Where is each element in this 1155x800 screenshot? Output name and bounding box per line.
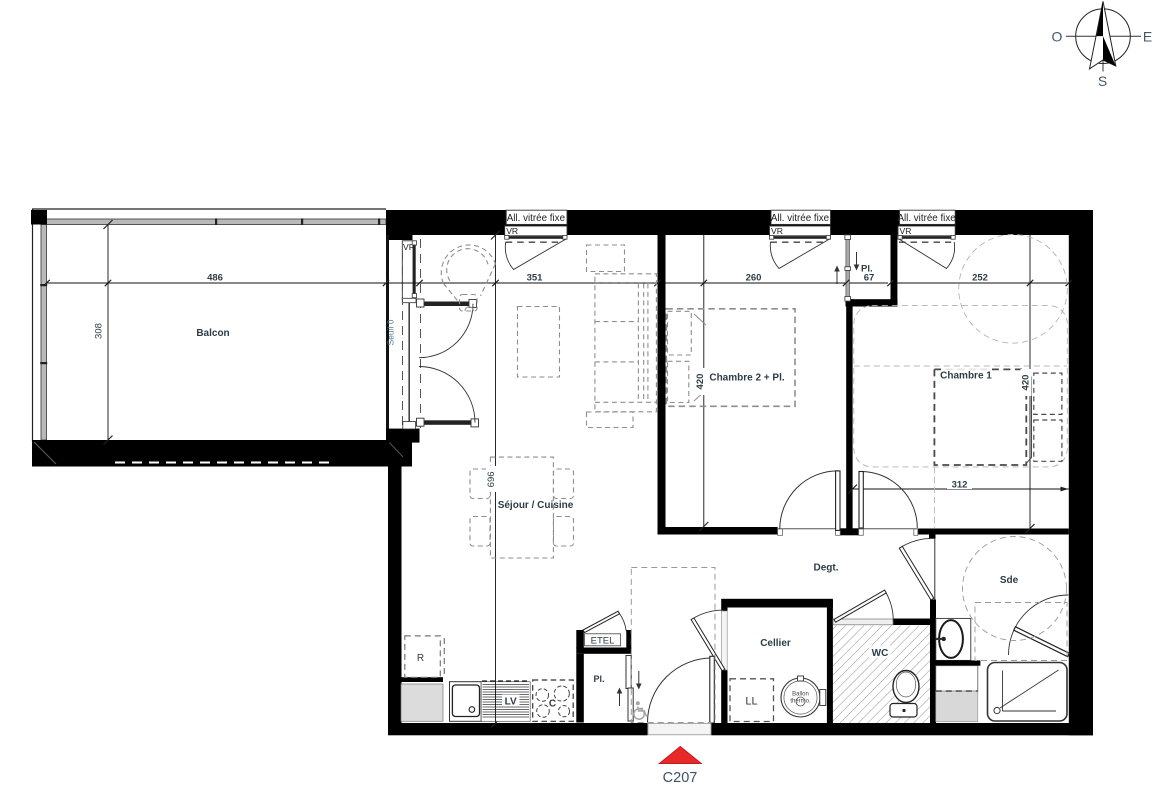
svg-text:Sde: Sde — [1000, 575, 1019, 586]
svg-text:ETEL: ETEL — [591, 636, 615, 647]
svg-text:E: E — [1143, 29, 1152, 45]
svg-text:LV: LV — [505, 697, 517, 708]
svg-text:67: 67 — [864, 273, 875, 284]
svg-text:R: R — [417, 653, 424, 664]
svg-text:WC: WC — [872, 648, 889, 659]
svg-text:Cellier: Cellier — [760, 638, 791, 649]
svg-text:C: C — [549, 699, 556, 710]
svg-text:O: O — [1052, 29, 1063, 45]
svg-text:Chambre 2 + Pl.: Chambre 2 + Pl. — [709, 373, 785, 384]
svg-text:Séjour / Cuisine: Séjour / Cuisine — [498, 500, 574, 511]
svg-text:Chambre 1: Chambre 1 — [940, 371, 992, 382]
svg-text:Balcon: Balcon — [196, 328, 229, 339]
svg-text:420: 420 — [695, 374, 706, 390]
svg-text:VR: VR — [771, 226, 783, 236]
svg-text:All. vitrée fixe: All. vitrée fixe — [507, 213, 566, 224]
svg-text:252: 252 — [972, 273, 988, 284]
svg-text:LL: LL — [745, 696, 757, 708]
svg-text:696: 696 — [486, 471, 497, 487]
svg-text:C207: C207 — [663, 770, 698, 786]
svg-text:All. vitrée fixe: All. vitrée fixe — [897, 213, 956, 224]
svg-text:486: 486 — [207, 273, 223, 284]
svg-text:Pl.: Pl. — [593, 674, 604, 684]
svg-text:All. vitrée fixe: All. vitrée fixe — [771, 213, 830, 224]
svg-text:S: S — [1098, 73, 1107, 89]
svg-text:thermo.: thermo. — [790, 699, 811, 705]
svg-text:VR: VR — [506, 226, 518, 236]
svg-text:308: 308 — [94, 323, 105, 339]
svg-text:312: 312 — [952, 480, 968, 491]
svg-text:351: 351 — [527, 273, 544, 284]
svg-text:420: 420 — [1021, 375, 1032, 391]
svg-text:Ballon: Ballon — [792, 692, 809, 698]
svg-text:Degt.: Degt. — [814, 563, 839, 574]
svg-text:Seuil 0: Seuil 0 — [386, 319, 396, 345]
svg-text:260: 260 — [746, 273, 762, 284]
svg-text:VR: VR — [900, 226, 912, 236]
